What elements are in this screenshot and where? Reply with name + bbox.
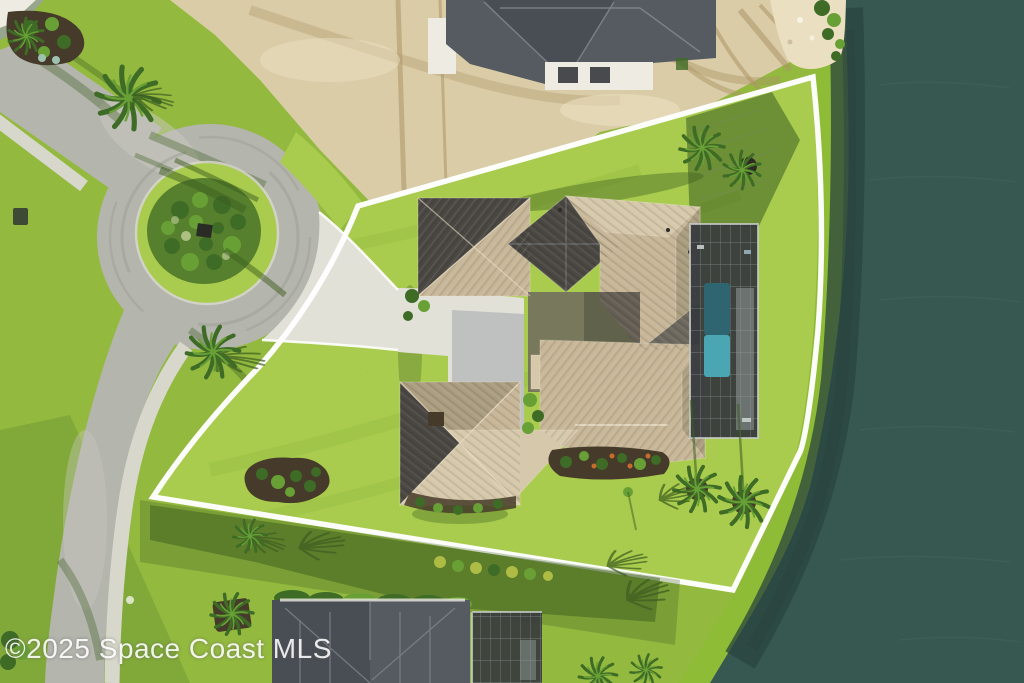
utility-box	[13, 208, 28, 225]
pool-enclosure	[690, 224, 758, 438]
island-sign	[196, 223, 213, 238]
mls-watermark: ©2025 Space Coast MLS	[5, 633, 332, 665]
courtyard-plant	[523, 393, 537, 407]
agave-plant	[52, 56, 60, 64]
patio-furniture	[744, 250, 751, 254]
planter-box	[428, 412, 444, 426]
pool-deep-end	[704, 283, 730, 335]
pool	[704, 335, 730, 377]
aerial-photo-canvas	[0, 0, 1024, 683]
agave-plant	[38, 54, 46, 62]
portable-unit	[676, 58, 688, 70]
patio-furniture	[742, 418, 751, 422]
aerial-photo: ©2025 Space Coast MLS	[0, 0, 1024, 683]
neighbor-roof	[370, 600, 470, 683]
patio-furniture	[697, 245, 704, 249]
lawn-object	[126, 596, 134, 604]
shrub-bed-west	[245, 458, 330, 504]
entry-plant	[405, 289, 419, 303]
